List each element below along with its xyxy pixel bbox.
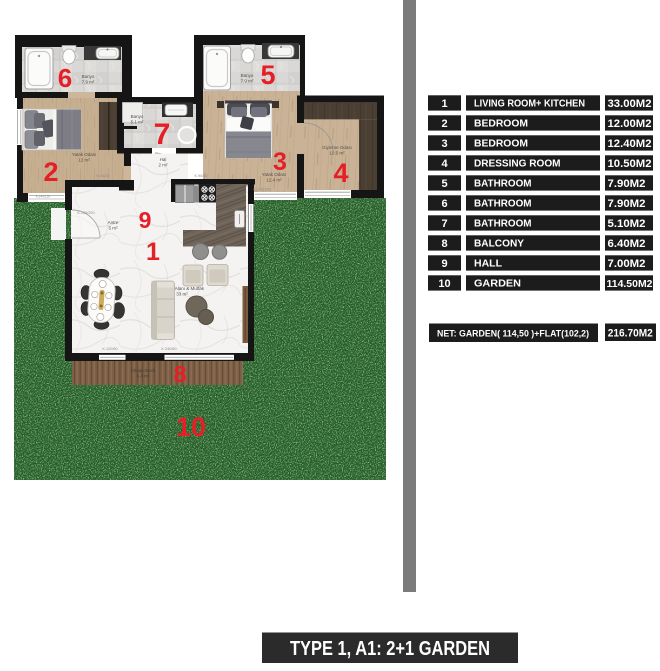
svg-text:5: 5 — [441, 178, 447, 190]
svg-text:LIVING ROOM+ KITCHEN: LIVING ROOM+ KITCHEN — [474, 99, 585, 110]
svg-text:K.100/220: K.100/220 — [77, 211, 94, 215]
svg-text:216.70M2: 216.70M2 — [608, 328, 653, 340]
svg-text:7.90M2: 7.90M2 — [608, 198, 646, 210]
svg-text:8: 8 — [441, 238, 447, 250]
svg-text:3: 3 — [441, 138, 447, 150]
svg-text:2: 2 — [43, 157, 58, 187]
svg-text:Banyo: Banyo — [82, 74, 95, 79]
svg-text:4: 4 — [333, 158, 348, 188]
svg-text:HALL: HALL — [474, 259, 502, 270]
svg-text:33.00M2: 33.00M2 — [608, 98, 652, 110]
svg-text:K.90/20: K.90/20 — [194, 174, 207, 178]
svg-text:7: 7 — [441, 218, 447, 230]
svg-text:Giyinme Odası: Giyinme Odası — [322, 145, 352, 150]
svg-text:10.5 m²: 10.5 m² — [329, 151, 345, 156]
svg-text:7.00M2: 7.00M2 — [608, 258, 646, 270]
svg-text:12.4 m²: 12.4 m² — [266, 178, 282, 183]
svg-text:K.240/60: K.240/60 — [161, 347, 176, 351]
svg-text:6: 6 — [58, 63, 72, 93]
svg-text:Yatak Odası: Yatak Odası — [72, 152, 96, 157]
svg-text:K.140/120: K.140/120 — [253, 188, 270, 192]
svg-text:1: 1 — [441, 98, 447, 110]
svg-text:6.4 m²: 6.4 m² — [137, 374, 150, 379]
svg-text:Antre: Antre — [108, 220, 119, 225]
svg-text:BATHROOM: BATHROOM — [474, 179, 532, 190]
svg-text:7.90M2: 7.90M2 — [608, 178, 646, 190]
svg-text:7.9 m²: 7.9 m² — [241, 79, 254, 84]
svg-text:BEDROOM: BEDROOM — [474, 139, 528, 150]
svg-text:BATHROOM: BATHROOM — [474, 219, 532, 230]
svg-text:K.90/20: K.90/20 — [96, 174, 109, 178]
svg-text:DRESSING ROOM: DRESSING ROOM — [474, 159, 561, 170]
svg-text:114.50M2: 114.50M2 — [607, 279, 653, 290]
svg-text:5.1 m²: 5.1 m² — [131, 120, 144, 125]
svg-text:Hal: Hal — [160, 157, 167, 162]
svg-text:BATHROOM: BATHROOM — [474, 199, 532, 210]
svg-text:BALCONY: BALCONY — [474, 239, 524, 250]
svg-text:12.00M2: 12.00M2 — [608, 118, 652, 130]
svg-text:Banyo: Banyo — [241, 73, 254, 78]
svg-text:33 m²: 33 m² — [176, 292, 188, 297]
svg-text:5: 5 — [260, 60, 275, 90]
svg-text:NET: GARDEN( 114,50 )+FLAT(1: NET: GARDEN( 114,50 )+FLAT(102,2) — [437, 329, 589, 340]
svg-text:7: 7 — [154, 118, 171, 151]
svg-text:8: 8 — [174, 361, 187, 387]
svg-text:2: 2 — [441, 118, 447, 130]
svg-text:1: 1 — [146, 238, 160, 266]
svg-text:BEDROOM: BEDROOM — [474, 119, 528, 130]
svg-text:7.9 m²: 7.9 m² — [82, 80, 95, 85]
svg-text:6: 6 — [441, 198, 447, 210]
svg-text:TYPE 1, A1: 2+1 GARDEN: TYPE 1, A1: 2+1 GARDEN — [290, 637, 490, 660]
svg-text:2 m²: 2 m² — [159, 163, 169, 168]
svg-text:Yatak Odası: Yatak Odası — [262, 172, 286, 177]
svg-text:K.140/120: K.140/120 — [36, 195, 51, 199]
svg-text:9: 9 — [441, 258, 447, 270]
svg-text:GARDEN: GARDEN — [474, 279, 521, 290]
svg-text:5.10M2: 5.10M2 — [608, 218, 646, 230]
svg-text:5 m²: 5 m² — [109, 226, 119, 231]
svg-text:6.40M2: 6.40M2 — [608, 238, 646, 250]
svg-text:4: 4 — [441, 158, 448, 170]
svg-text:12.40M2: 12.40M2 — [608, 138, 652, 150]
svg-text:10: 10 — [438, 278, 450, 290]
svg-text:Banyo: Banyo — [131, 114, 144, 119]
svg-text:10: 10 — [176, 412, 206, 442]
svg-text:12 m²: 12 m² — [78, 158, 90, 163]
svg-text:10.50M2: 10.50M2 — [608, 158, 652, 170]
svg-text:Ahşap Deck: Ahşap Deck — [131, 368, 156, 373]
svg-text:K.120/60: K.120/60 — [102, 347, 117, 351]
svg-text:9: 9 — [139, 207, 152, 233]
